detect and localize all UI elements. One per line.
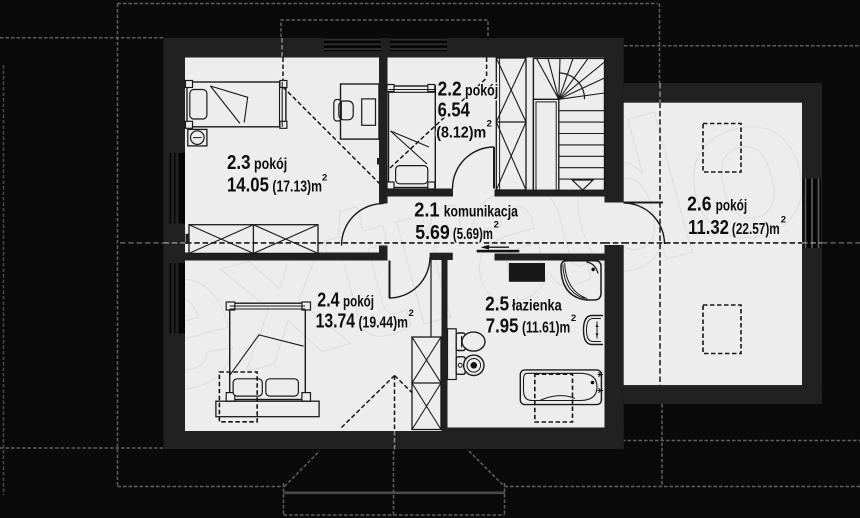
svg-text:2.3: 2.3 <box>227 152 251 174</box>
svg-text:14.05: 14.05 <box>227 175 269 197</box>
svg-text:2: 2 <box>487 118 492 129</box>
svg-text:(22.57)m: (22.57)m <box>732 221 780 238</box>
svg-text:(19.44)m: (19.44)m <box>359 315 409 332</box>
svg-text:2.2: 2.2 <box>438 79 462 101</box>
svg-text:6.54: 6.54 <box>438 100 471 122</box>
svg-text:13.74: 13.74 <box>316 311 356 333</box>
svg-text:2: 2 <box>781 215 786 226</box>
svg-text:2.5: 2.5 <box>485 294 509 316</box>
svg-text:(17.13)m: (17.13)m <box>272 179 322 196</box>
svg-text:(11.61)m: (11.61)m <box>522 320 570 337</box>
svg-text:(5.69)m: (5.69)m <box>453 226 493 243</box>
svg-text:5.69: 5.69 <box>415 222 450 244</box>
svg-text:pokój: pokój <box>465 83 498 100</box>
svg-text:komunikacja: komunikacja <box>444 203 519 220</box>
svg-text:2.4: 2.4 <box>317 290 340 312</box>
svg-text:(8.12)m: (8.12)m <box>436 125 486 142</box>
svg-text:pokój: pokój <box>343 294 374 311</box>
svg-text:2.1: 2.1 <box>414 199 439 221</box>
svg-text:2: 2 <box>494 220 499 231</box>
svg-text:2.6: 2.6 <box>687 194 711 216</box>
svg-text:2: 2 <box>409 308 414 319</box>
svg-text:pokój: pokój <box>716 198 748 215</box>
svg-text:pokój: pokój <box>254 156 287 173</box>
svg-text:2: 2 <box>322 172 327 183</box>
svg-text:7.95: 7.95 <box>486 316 519 338</box>
svg-text:2: 2 <box>571 313 576 324</box>
svg-text:łazienka: łazienka <box>512 298 562 315</box>
svg-text:11.32: 11.32 <box>688 217 729 239</box>
